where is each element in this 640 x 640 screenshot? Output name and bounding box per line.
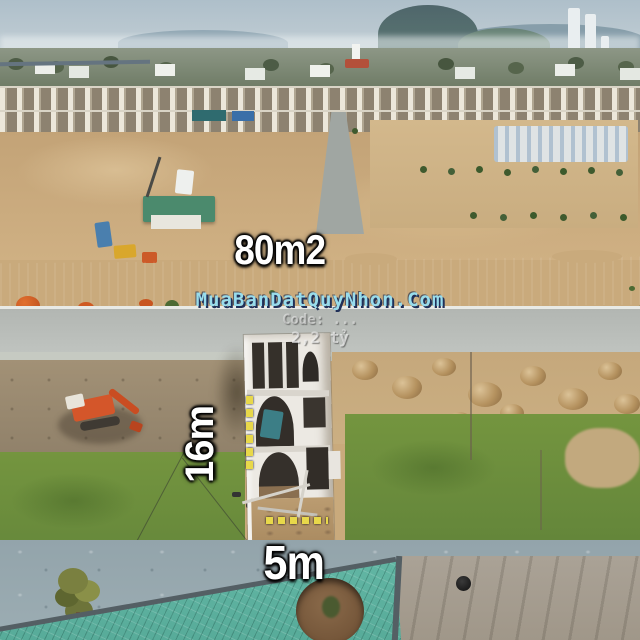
width-label: 5m: [263, 536, 324, 591]
sand-gap: [552, 250, 622, 263]
yellow-leaf-tree: [58, 568, 88, 594]
survey-stick: [540, 450, 542, 530]
dirt-mound: [558, 388, 588, 410]
watermark-price-line: 2,2 tỷ: [0, 328, 640, 347]
dirt-mound: [468, 382, 502, 407]
container-blue: [232, 111, 254, 121]
mullion: [264, 342, 269, 388]
palm-row-lots: [470, 212, 477, 219]
floor-slab: [247, 390, 329, 396]
open-frame: [252, 342, 299, 389]
teal-tarp: [260, 409, 284, 440]
courtyard-tree: [322, 596, 340, 618]
house-under-construction: [244, 333, 334, 547]
dirt-mound: [352, 360, 378, 380]
arch-doorway: [255, 396, 294, 447]
motorbike: [232, 492, 241, 497]
width-dashed-line: [266, 517, 328, 524]
window-opening: [303, 397, 326, 427]
side-ledge: [328, 451, 341, 479]
area-label: 80m2: [234, 226, 325, 274]
dirt-mound: [598, 362, 622, 380]
depth-label: 16m: [178, 398, 222, 490]
arch-window: [302, 351, 319, 381]
container-teal: [192, 110, 226, 121]
white-truck: [175, 169, 194, 195]
palm-row-road: [352, 128, 358, 134]
town-strip: [0, 48, 640, 90]
dirt-mound: [520, 366, 546, 386]
survey-stick: [470, 352, 472, 460]
yellow-loader: [113, 244, 136, 259]
sand-patch: [565, 428, 640, 488]
material-stacks: [494, 126, 628, 162]
aerial-construction-photo: 80m2 16m 5m MuaBanDatQuyNhon.Com Code: .…: [0, 0, 640, 640]
watermark-site-name: MuaBanDatQuyNhon.Com: [0, 289, 640, 311]
dirt-mound: [432, 358, 456, 376]
dirt-mound: [614, 394, 640, 414]
construction-frames-row: [0, 86, 640, 111]
pipe-stub: [456, 576, 471, 591]
palm-row-lots: [420, 166, 427, 173]
mullion: [282, 342, 287, 388]
gray-pavement-right: [398, 556, 640, 640]
church-red-roof: [345, 59, 369, 68]
site-container: [151, 215, 201, 229]
depth-dashed-line: [246, 396, 253, 472]
sand-gap: [345, 253, 397, 265]
dirt-mound: [392, 376, 422, 399]
watermark-code-line: Code: ...: [0, 312, 640, 328]
watermark: MuaBanDatQuyNhon.Com Code: ... 2,2 tỷ: [0, 289, 640, 347]
